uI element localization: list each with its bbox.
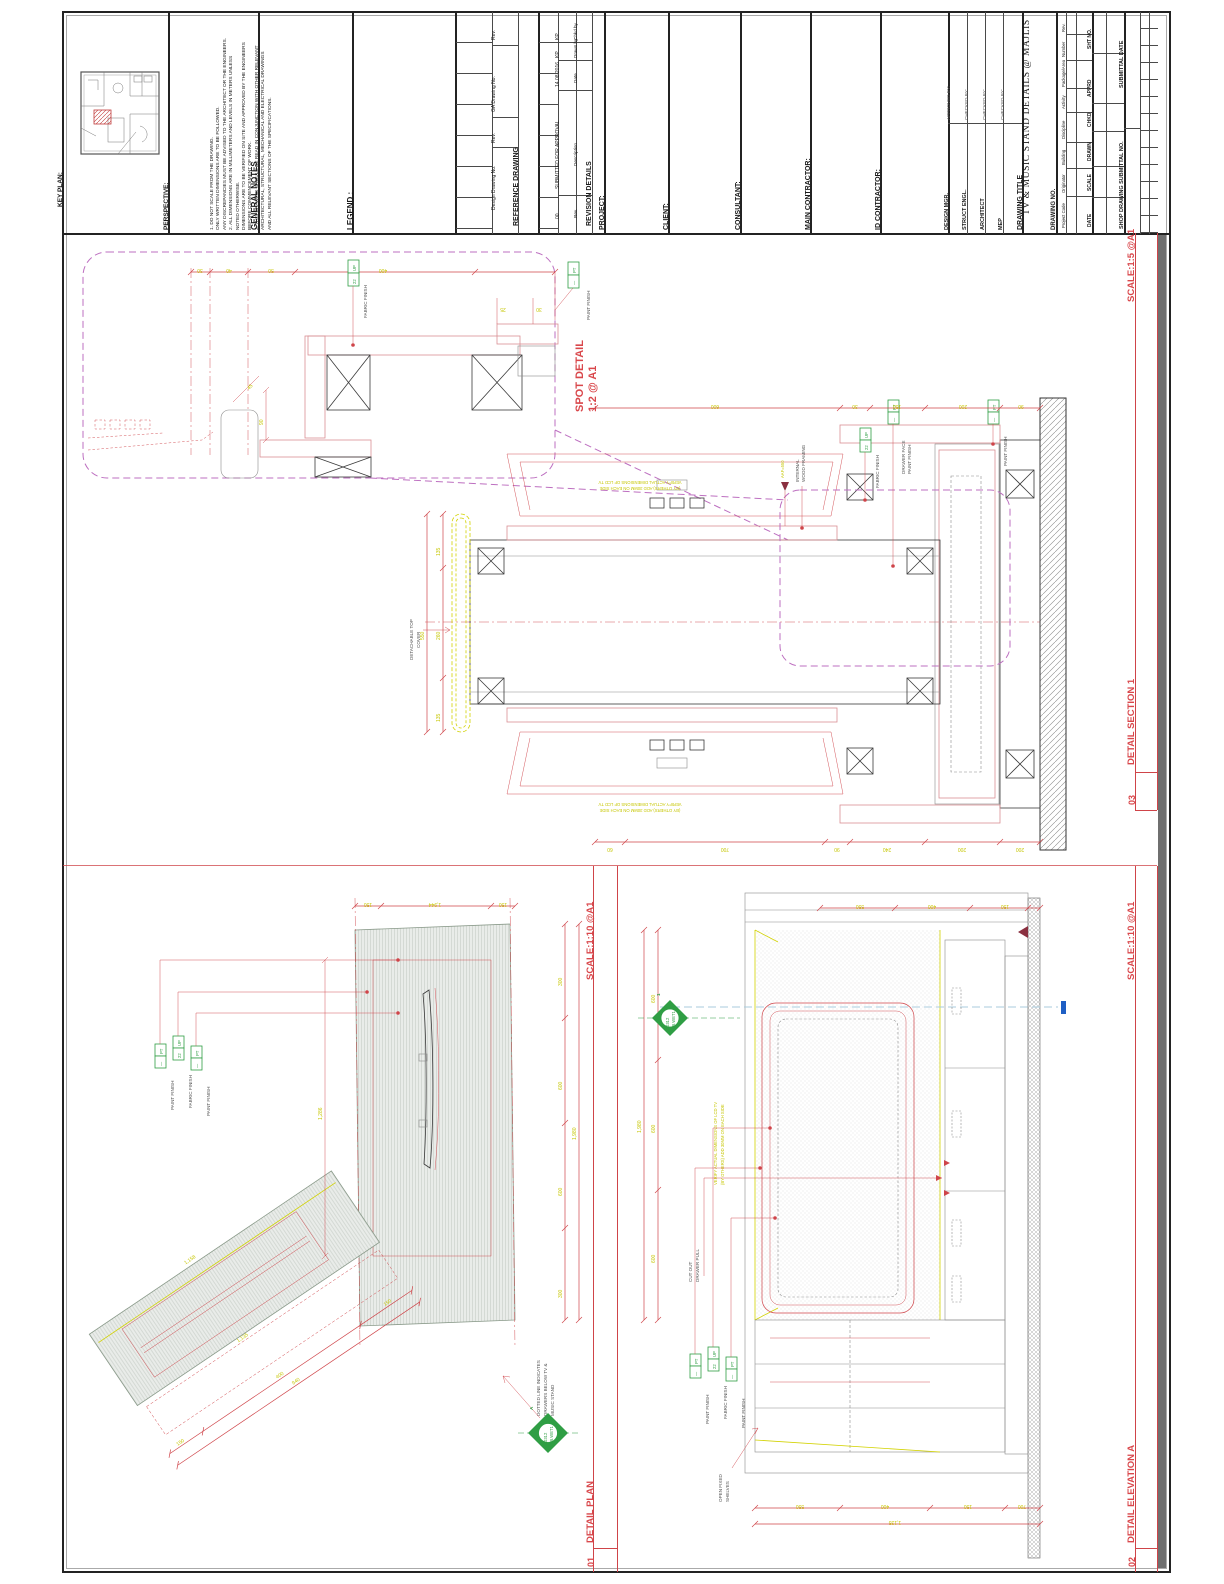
tag-code: PT (730, 1361, 735, 1367)
fabric-finish-label: FABRIC FINISH (363, 285, 368, 318)
elev-dim: 550 (796, 1503, 805, 1509)
elev-drawer-pull (952, 1220, 961, 1246)
section-cabinet-interior (935, 444, 999, 804)
tag-num: 22 (712, 1364, 717, 1369)
section-bar-line (1135, 810, 1157, 811)
section-bar-line (1157, 233, 1158, 810)
appr-by-2: CHECKED BY: (983, 89, 989, 120)
plan-dim: 1,286 (318, 1107, 324, 1120)
plan-dim: 940 (291, 1377, 301, 1387)
paint-finish-tag: PT — PAINT FINISH (555, 262, 591, 320)
verify-note-line1: VERIFY ACTUAL DIMENSIONS OF LCD TV (598, 480, 681, 485)
detachable-label-2: COVER (416, 631, 421, 648)
drawing-sheet: KEY PLAN: PERSPECTIVE: GENERAL NOTES 1. … (0, 0, 1224, 1584)
elev-drawer-strip (945, 940, 1005, 1320)
detachable-label-1: DETACHABLE TOP (409, 619, 414, 660)
elevation-ref-marker: 0312 2B.WET1 A (518, 1406, 578, 1453)
dno-line (1066, 168, 1092, 169)
elev-level-marker (1018, 926, 1028, 938)
dno-line (1066, 60, 1092, 61)
dno-line (1076, 12, 1077, 234)
shelves-note: OPEN FIXED SHELVES (718, 1428, 758, 1502)
rev-line (558, 60, 592, 61)
tag-code: PT (572, 267, 577, 273)
x-block (1006, 750, 1034, 778)
section-scale: SCALE:1:5 @A1 (1127, 229, 1139, 302)
shop-line (1124, 128, 1140, 129)
refdwg-line (492, 45, 518, 46)
elev-dim: 600 (651, 1124, 657, 1133)
elev-bar-line (1135, 1548, 1157, 1549)
shelves-label-1: OPEN FIXED (718, 1473, 723, 1502)
spot-dim: 50 (268, 267, 274, 273)
rev-line (558, 90, 592, 91)
plan-bar-line (617, 866, 618, 1572)
dno-line (1066, 196, 1092, 197)
fabric-finish-tag: UP 22 FABRIC FINISH (860, 428, 880, 502)
spot-dim: 90 (259, 419, 265, 425)
paint-finish-label: PAINT FINISH (170, 1081, 175, 1110)
section-bottom-board (840, 805, 1000, 823)
rev-hdr-date: Date (574, 73, 580, 83)
view-detail-section: UP 22 FABRIC FINISH PT — DRAWER FACE PAI… (395, 378, 1130, 870)
spot-right-board (497, 324, 558, 344)
meta-date: DATE (1088, 214, 1095, 227)
section-wall-hatch (1040, 398, 1066, 850)
rev-row-chkd: KP (556, 33, 562, 40)
x-block (1006, 470, 1034, 498)
dno-col-number: Number (1062, 42, 1068, 57)
cutout-label-1: CUT OUT (688, 1261, 693, 1282)
paint-finish-label: PAINT FINISH (206, 1087, 211, 1116)
section-left-dims (424, 511, 446, 735)
elev-dim: 600 (651, 1254, 657, 1263)
cutout-label-2: DRAWER PULL (695, 1249, 700, 1282)
section-lower-drawer (507, 732, 843, 794)
tag-code: PT (694, 1358, 699, 1364)
section-dim: 90 (1018, 403, 1024, 409)
refdwg-line (492, 117, 518, 118)
refdwg-col-design: Design Drawing No. (492, 166, 498, 210)
appr-line (948, 123, 1022, 124)
x-block (907, 678, 933, 704)
verify-note-line1: VERIFY ACTUAL DIMENSIONS OF LCD TV (713, 1102, 718, 1185)
section-detail-bubble (780, 490, 1010, 666)
tb-div (668, 12, 670, 234)
appr-role-architect: ARCHITECT (981, 198, 988, 230)
meta-scale: SCALE (1088, 174, 1095, 191)
plan-dim: 150 (499, 901, 508, 907)
verify-note-line2: (BY OTHERS) ADD 30MM ON EACH SIDE (720, 1104, 725, 1185)
detachable-cover-note: DETACHABLE TOP COVER (409, 619, 450, 660)
elev-plinth (1005, 956, 1028, 1454)
consultant-label: CONSULTANT: (735, 181, 744, 230)
paint-finish-label: PAINT FINISH (741, 1399, 746, 1428)
x-block (478, 678, 504, 704)
section-dim: 135 (436, 713, 442, 722)
tag-num: 22 (864, 445, 869, 450)
elev-dim: 1,135 (889, 1519, 902, 1525)
shop-grid (1141, 12, 1158, 234)
heavy-edge-band (1158, 235, 1166, 1568)
section-dim: 240 (883, 846, 892, 852)
section-tv-slot (951, 476, 981, 772)
key-plan-map (78, 66, 162, 160)
elev-scale: SCALE:1:10 @A1 (1127, 902, 1139, 980)
meta-drawn: DRAWN (1088, 142, 1095, 161)
project-label: PROJECT: (599, 195, 608, 230)
spot-x-block-1 (327, 355, 370, 410)
meta-chkd: CHKD (1088, 113, 1095, 127)
verify-note-vertical: VERIFY ACTUAL DIMENSIONS OF LCD TV (BY O… (713, 1102, 725, 1185)
spot-post (221, 410, 258, 478)
rev-row-rev: 00 (556, 213, 562, 219)
spot-dim: 25 (500, 306, 506, 312)
elev-floor-band (1028, 898, 1040, 1558)
section-detachable-cover-inner (456, 518, 466, 728)
section-upper-wing-board (507, 526, 837, 540)
elev-bar-line (1157, 866, 1158, 1572)
appr-by-0: APPROVED BY: (947, 86, 953, 120)
view-detail-plan: 150 400 150 940 1,158 1,135 PT — PAINT F… (63, 868, 598, 1572)
elev-fabric-front (755, 930, 940, 1320)
section-lower-wing-board (507, 708, 837, 722)
spot-dim: 30 (536, 306, 542, 312)
meta-apprd: APPRD (1088, 79, 1095, 97)
ref-sheet: 2B.WET1 (549, 1425, 554, 1444)
tag-code: UP (177, 1040, 182, 1046)
elev-dim: 150 (1001, 903, 1010, 909)
section-cabinet-lining (939, 450, 995, 798)
tag-code: PT (195, 1050, 200, 1056)
dno-col-rev: Rev. (1062, 23, 1068, 32)
elev-shelves (755, 1320, 1005, 1452)
elev-drawer-pull (952, 988, 961, 1014)
section-dim: 700 (721, 846, 730, 852)
elev-drawer-pull (952, 1111, 961, 1137)
dno-col-building: Building (1062, 150, 1068, 165)
spot-dim: 30 (197, 267, 203, 273)
rev-hdr-rev: Rev. (574, 209, 580, 218)
spot-bottom-board (260, 440, 371, 457)
section-bar-line (1135, 772, 1157, 773)
elev-dim: 400 (881, 1503, 890, 1509)
section-dim: 90 (834, 846, 840, 852)
tag-code: UP (352, 265, 357, 271)
ref-number: 1 (656, 993, 661, 996)
dotted-note-1: DOTTED LINE INDICATES (536, 1360, 541, 1416)
rev-hdr-drawn: Drawn by (574, 39, 580, 58)
plan-dim: 400 (275, 1371, 285, 1381)
refdwg-empty-rows (456, 12, 492, 234)
elev-blue-mark (1061, 1001, 1066, 1014)
id-contractor-label: ID CONTRACTOR: (875, 169, 884, 230)
dno-col-project-code: Project Code (1062, 203, 1068, 228)
section-dim: 135 (436, 547, 442, 556)
meta-sht-no: SHT NO. (1088, 29, 1095, 49)
spot-tv-bracket (88, 420, 213, 450)
verify-note-line2: (BY OTHERS) ADD 30MM ON EACH SIDE (599, 486, 680, 491)
ref-code: 0312 (543, 1432, 548, 1442)
section-dim: 200 (1016, 846, 1025, 852)
section-dim: 600 (711, 403, 720, 409)
dotted-note-2: DRAWERS BELOW TV & (543, 1363, 548, 1416)
meta-line (1092, 103, 1124, 104)
spot-top-board (308, 336, 520, 355)
verify-note-top: VERIFY ACTUAL DIMENSIONS OF LCD TV (BY O… (598, 480, 681, 491)
meta-line (1092, 131, 1124, 132)
legend-label: LEGEND : (347, 192, 357, 230)
fabric-finish-label: FABRIC FINISH (723, 1386, 728, 1419)
meta-line (1106, 12, 1107, 234)
client-label: CLIENT: (663, 203, 672, 230)
spot-dim: 40 (226, 267, 232, 273)
appr-role-design-mgr: DESIGN MGR. (945, 193, 952, 230)
spot-right-infill (518, 346, 555, 376)
plan-dim: 600 (558, 1081, 564, 1090)
x-block (907, 548, 933, 574)
section-dim: 200 (958, 846, 967, 852)
section-dim: 60 (607, 846, 613, 852)
internal-framing-label-2: WOOD FRAMING (801, 444, 806, 482)
elev-number: 02 (1128, 1557, 1139, 1567)
spot-dim: 400 (379, 267, 388, 273)
elev-dim: 150 (964, 1503, 973, 1509)
tag-num: 22 (177, 1053, 182, 1058)
verify-note-line1: VERIFY ACTUAL DIMENSIONS OF LCD TV (598, 802, 681, 807)
section-dim: 150 (893, 403, 902, 409)
revision-title: REVISION DETAILS (586, 161, 595, 226)
elev-title: DETAIL ELEVATION A (1127, 1445, 1139, 1543)
drawing-no-label: DRAWING NO. (1051, 189, 1059, 230)
plan-dim: 150 (364, 901, 373, 907)
internal-framing-label-1: INTERNAL (795, 459, 800, 482)
spot-x-block-3 (315, 457, 371, 477)
rev-row-drawn: KP (556, 51, 562, 58)
rev-hdr-chkd: Chkd by (574, 23, 580, 40)
section-detachable-cover (452, 514, 470, 732)
dno-col-package: Package/Area (1062, 60, 1068, 87)
elev-dim: 1,980 (637, 1120, 643, 1133)
fabric-finish-label: FABRIC FINISH (875, 455, 880, 488)
tag-code: UP (712, 1351, 717, 1357)
dno-col-discipline: Discipline (1062, 121, 1068, 139)
view-detail-elevation: 550 400 150 550 400 150 700 1,135 600 60… (620, 868, 1125, 1572)
tag-code: PT (159, 1048, 164, 1054)
plan-dim: 600 (558, 1187, 564, 1196)
submittal-date-label: SUBMITTAL DATE (1120, 41, 1127, 88)
ref-sheet: 2B.WET1 (671, 1010, 676, 1029)
fabric-finish-tag: UP 22 FABRIC FINISH (348, 260, 368, 347)
shop-submittal-label: SHOP DRAWING SUBMITTAL NO. (1120, 141, 1127, 229)
drawer-face-label-2: PAINT FINISH (907, 445, 912, 474)
x-block (847, 748, 873, 774)
appr-role-struct: STRUCT ENGL. (963, 189, 970, 230)
section-dim: 200 (959, 403, 968, 409)
refdwg-col-rev1: Rev. (492, 133, 498, 143)
paint-finish-tag: PT — PAINT FINISH (690, 1166, 762, 1424)
shelves-label-2: SHELVES (725, 1481, 730, 1502)
tag-code: UP (864, 432, 869, 438)
verify-note-bottom: VERIFY ACTUAL DIMENSIONS OF LCD TV (BY O… (598, 802, 681, 813)
drawer-face-label-1: DRAWER FACE (901, 440, 906, 474)
perspective-label: PERSPECTIVE: (164, 182, 172, 230)
key-plan-label: KEY PLAN: (58, 172, 66, 207)
main-contractor-label: MAIN CONTRACTOR: (805, 158, 814, 230)
appr-by-3: CHECKED BY: (1001, 89, 1007, 120)
paint-finish-label: PAINT FINISH (1003, 437, 1008, 466)
elev-drawer-pull (952, 1276, 961, 1302)
rev-row-date: 14.08.2016 (556, 62, 562, 87)
ref-code: 0312 (665, 1017, 670, 1027)
tag-num: 22 (352, 279, 357, 284)
tag-code: PT (992, 404, 997, 410)
plan-right-dims (562, 921, 582, 1323)
verify-note-line2: (BY OTHERS) ADD 30MM ON EACH SIDE (599, 808, 680, 813)
section-dim: 30 (852, 403, 858, 409)
spot-centerlines (191, 268, 248, 455)
dno-col-originator: Originator (1062, 174, 1068, 193)
refdwg-col-rev2: Rev. (492, 30, 498, 40)
appr-role-mep: MEP (999, 218, 1006, 230)
paint-finish-label: PAINT FINISH (586, 291, 591, 320)
general-notes-body: 1. DO NOT SCALE FROM THE DRAWING. ONLY W… (210, 14, 274, 230)
section-dim: 260 (436, 631, 442, 640)
section-top-dims (592, 405, 1043, 411)
plan-dim: 300 (558, 977, 564, 986)
internal-framing-note: INTERNAL WOOD FRAMING (795, 444, 806, 529)
spot-dim: 45 (246, 383, 254, 391)
paint-finish-label: PAINT FINISH (705, 1395, 710, 1424)
plan-dim: 150 (175, 1438, 185, 1448)
elev-dim: 550 (856, 903, 865, 909)
x-block (847, 474, 873, 500)
dno-col-activity: Activity (1062, 95, 1068, 109)
refdwg-col-ga: GA Drawing No. (492, 76, 498, 112)
drawing-title: TV & MUSIC STAND DETAILS @ MAJLIS (1023, 19, 1035, 215)
rev-row-desc: SUBMITTED FOR APPROVAL (556, 120, 562, 189)
level-marker-label: AAF=550 (780, 460, 785, 478)
refdwg-title: REFERENCE DRAWING (513, 147, 522, 226)
elev-dim: 400 (928, 903, 937, 909)
appr-by-1: CHECKED BY: (965, 89, 971, 120)
plan-dim: 1,980 (572, 1127, 578, 1140)
dotted-note-3: MUSIC STAND (550, 1384, 555, 1416)
x-block (478, 548, 504, 574)
key-plan-highlight-room (94, 110, 111, 124)
elev-dim: 700 (1018, 1503, 1027, 1509)
plan-dim: 1,944 (429, 901, 442, 907)
fabric-finish-label: FABRIC FINISH (188, 1075, 193, 1108)
section-bottom-dims (592, 839, 1043, 845)
rev-hdr-desc: Description (574, 143, 580, 166)
plan-dim: 300 (558, 1289, 564, 1298)
